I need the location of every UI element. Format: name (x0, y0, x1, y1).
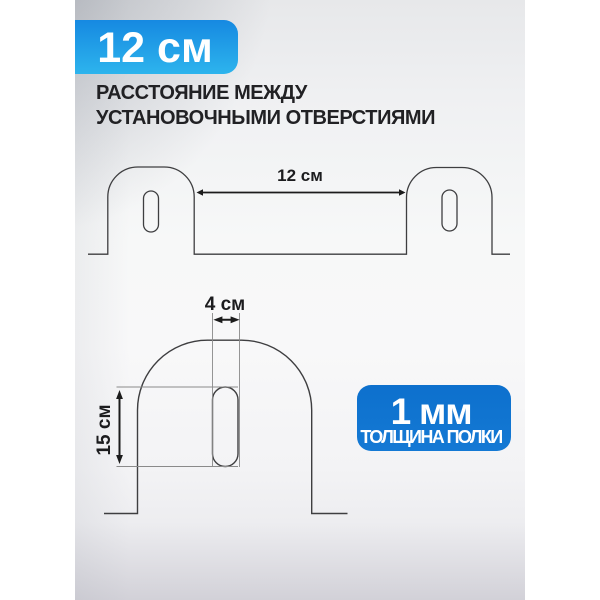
svg-text:15 см: 15 см (94, 404, 115, 455)
svg-text:12 см: 12 см (277, 166, 323, 185)
svg-text:4 см: 4 см (205, 294, 245, 315)
